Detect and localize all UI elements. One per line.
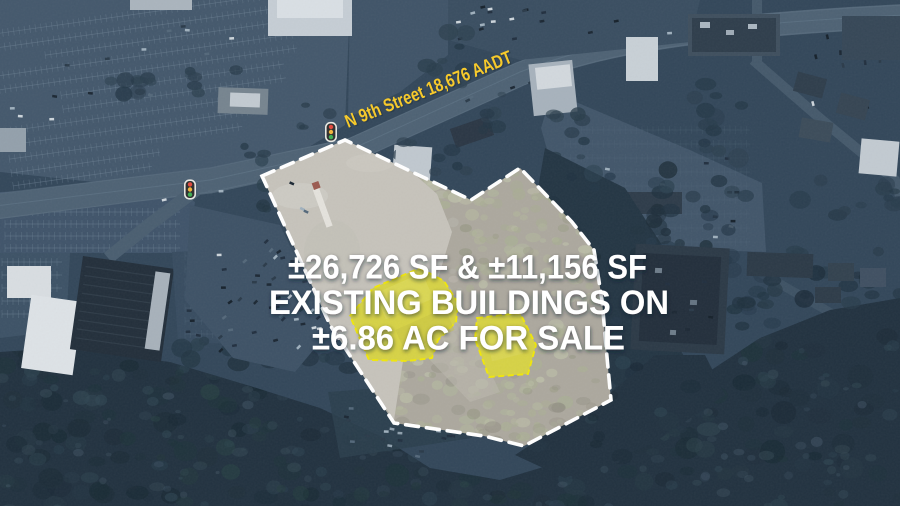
svg-text:EXISTING BUILDINGS ON: EXISTING BUILDINGS ON bbox=[269, 284, 669, 322]
svg-text:±6.86 AC FOR SALE: ±6.86 AC FOR SALE bbox=[312, 320, 625, 358]
svg-text:±26,726 SF & ±11,156 SF: ±26,726 SF & ±11,156 SF bbox=[288, 249, 647, 287]
